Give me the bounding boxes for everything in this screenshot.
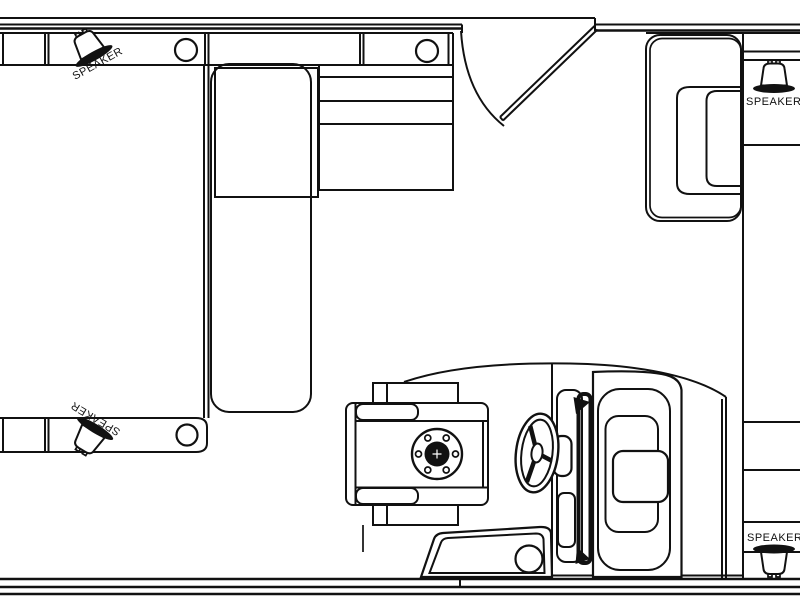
boat-floor-plan: SPEAKER SPEAKER SPEAKER SPEAKER	[0, 0, 800, 614]
lounge-backrest-divider	[204, 65, 209, 418]
cup-holder-icon	[177, 425, 198, 446]
speaker-label-top-right: SPEAKER	[746, 96, 800, 108]
armrest-top	[373, 383, 458, 403]
floor-plan-drawing: SPEAKER SPEAKER SPEAKER SPEAKER	[0, 0, 800, 614]
port-bow-bench	[0, 33, 453, 65]
captains-chair	[346, 383, 488, 552]
gate-swing-arc	[461, 31, 504, 126]
speaker-label-bottom-right: SPEAKER	[747, 532, 800, 544]
boarding-gate	[461, 26, 598, 126]
windshield-strip	[579, 394, 591, 563]
starboard-seat	[646, 35, 742, 221]
speaker-icon-top-right	[753, 61, 795, 94]
gate-door	[500, 26, 598, 121]
kick-panel	[421, 527, 552, 577]
gauge-icon	[516, 546, 543, 573]
grab-handle	[613, 451, 668, 502]
storage-console	[319, 65, 453, 190]
armrest-bottom	[373, 505, 458, 525]
speaker-icon-bottom-right	[753, 545, 795, 578]
steering-wheel-icon	[511, 411, 562, 495]
cup-holder-icon	[175, 39, 197, 61]
dash-panel	[558, 493, 575, 547]
seat-pedestal-icon	[412, 429, 462, 479]
chaise-lounge	[211, 64, 318, 412]
cup-holder-icon	[416, 40, 438, 62]
lounge-backrest-cushion	[215, 68, 318, 197]
